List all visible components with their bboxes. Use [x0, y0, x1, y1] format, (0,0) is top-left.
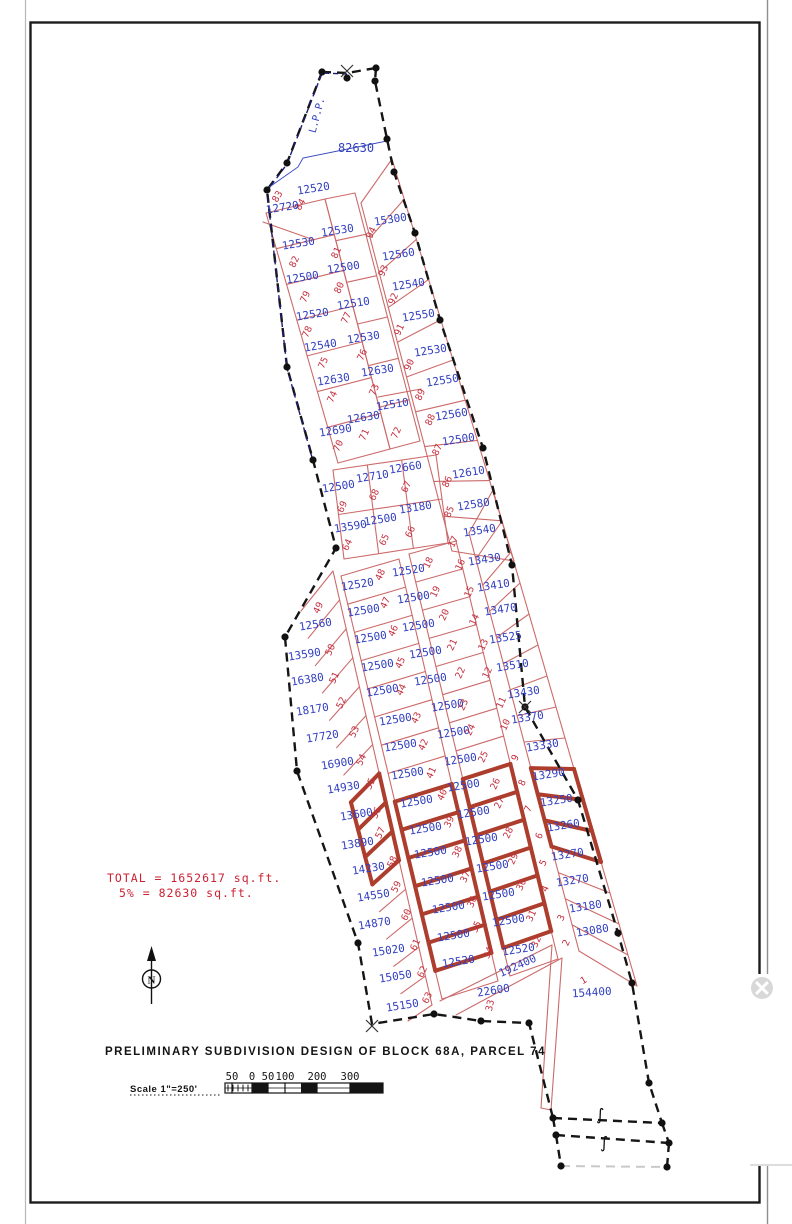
lot-number-label: 50 [323, 642, 338, 657]
lot-area-label: 12500 [446, 777, 481, 795]
lot-area-label: 12500 [420, 872, 455, 890]
boundary-dot [343, 74, 350, 81]
lot-number-label: 33 [484, 999, 497, 1012]
lot-area-label: 12520 [441, 953, 476, 971]
lot-line [344, 543, 448, 559]
lot-area-label: 12500 [399, 793, 434, 811]
boundary-dot [614, 929, 621, 936]
scale-group: Scale 1"=250' 50050100200300 [130, 1071, 383, 1095]
lot-area-label: 12500 [408, 644, 443, 662]
lot-area-label: 12500 [285, 269, 320, 287]
lot-area-label: 13180 [568, 898, 603, 916]
lot-area-label: 15150 [385, 997, 420, 1015]
lot-line [347, 276, 377, 283]
line-break-symbols: ∫ ∫ [596, 1105, 608, 1152]
scale-tick-label: 200 [308, 1071, 327, 1083]
scale-tick-label: 300 [341, 1071, 360, 1083]
boundary-dot [332, 544, 339, 551]
boundary-dot [479, 444, 486, 451]
boundary-dot [293, 767, 300, 774]
lot-line [456, 736, 503, 751]
lot-area-label: 12560 [434, 406, 469, 424]
lot-number-label: 15 [462, 584, 477, 599]
lot-number-label: 81 [329, 245, 344, 260]
lot-number-label: 77 [339, 310, 354, 325]
lot-area-label: 12720 [265, 199, 300, 217]
lot-number-label: 21 [445, 637, 460, 652]
lot-area-label: 12500 [408, 820, 443, 838]
boundary-dot [430, 1010, 437, 1017]
lot-number-label: 74 [325, 389, 340, 404]
lot-area-label: 12500 [456, 804, 491, 822]
lot-number-label: 20 [437, 607, 452, 622]
lot-line [463, 764, 511, 779]
boundary-dot [390, 168, 397, 175]
boundary-dot [645, 1079, 652, 1086]
lot-number-label: 75 [316, 355, 331, 370]
lot-area-label: 12510 [336, 295, 371, 313]
lot-number-label: 73 [367, 382, 382, 397]
lot-number-label: 67 [399, 479, 414, 494]
lot-line [358, 317, 388, 324]
lot-number-label: 66 [403, 524, 418, 539]
lot-area-label: 13080 [575, 922, 610, 940]
scale-tick-label: 100 [276, 1071, 295, 1083]
lot-area-label: 12560 [298, 616, 333, 634]
lot-line [338, 449, 390, 463]
lot-area-label: 12710 [355, 468, 390, 486]
lot-number-label: 93 [376, 263, 391, 278]
lot-area-label: 12500 [413, 844, 448, 862]
boundary-dot [318, 68, 325, 75]
boundary-dot [508, 561, 515, 568]
lot-number-label: 70 [331, 438, 346, 453]
lot-number-label: 63 [420, 990, 435, 1005]
lot-area-label: 12630 [316, 371, 351, 389]
boundary-dot [436, 316, 443, 323]
lot-line [325, 193, 355, 199]
boundary-dot [372, 64, 379, 71]
boundary-dot [281, 633, 288, 640]
lot-line [436, 652, 483, 666]
lot-area-label: 12500 [464, 831, 499, 849]
boundary-dot [371, 77, 378, 84]
lot-number-label: 34 [481, 945, 496, 960]
lot-line [443, 680, 490, 694]
lot-number-label: 16 [453, 557, 468, 572]
lot-number-label: 60 [399, 907, 414, 922]
lot-area-label: 12500 [436, 927, 471, 945]
lot-number-label: 46 [386, 623, 401, 638]
lot-area-label: 12500 [431, 899, 466, 917]
lot-area-label: 16380 [290, 671, 325, 689]
lot-number-label: 14 [467, 612, 482, 627]
lot-area-label: 12580 [456, 496, 491, 514]
lot-number-label: 78 [300, 324, 315, 339]
lot-area-label: 18170 [295, 701, 330, 719]
lot-number-label: 92 [386, 291, 401, 306]
drawing-title: PRELIMINARY SUBDIVISION DESIGN OF BLOCK … [105, 1046, 546, 1058]
lot-area-label: 12530 [281, 235, 316, 253]
lot-area-label: 13430 [467, 551, 502, 569]
lot-number-label: 2 [561, 938, 573, 948]
lot-line [541, 945, 552, 1108]
lot-number-label: 82 [287, 254, 302, 269]
lot-area-label: 12500 [326, 259, 361, 277]
lot-area-label: 14550 [356, 887, 391, 905]
lot-area-label: 17720 [305, 728, 340, 746]
boundary-dot [552, 1131, 559, 1138]
lot-area-label: 12500 [443, 751, 478, 769]
lot-area-label: 12540 [391, 276, 426, 294]
lot-number-label: 12 [480, 665, 495, 680]
lot-area-label: 13430 [506, 684, 541, 702]
lot-number-label: 71 [357, 427, 372, 442]
lot-number-label: 42 [416, 737, 431, 752]
lot-number-label: 53 [347, 724, 362, 739]
scale-tick-label: 0 [249, 1071, 255, 1083]
lot-line [379, 774, 399, 861]
lot-number-label: 49 [311, 600, 326, 615]
lot-area-label: 13470 [483, 601, 518, 619]
lot-area-label: 154400 [571, 985, 612, 1001]
drawing-frame [31, 23, 760, 1203]
lot-number-label: 68 [367, 487, 382, 502]
boundary-dot [628, 979, 635, 986]
lot-number-label: 80 [332, 280, 347, 295]
lot-area-label: 12500 [321, 478, 356, 496]
lot-area-label: 12630 [360, 362, 395, 380]
lot-area-label: 12530 [346, 329, 381, 347]
lot-area-label: 12500 [390, 765, 425, 783]
north-letter: N [148, 975, 156, 987]
boundary-dot [663, 1163, 670, 1170]
lot-number-label: 9 [510, 753, 523, 763]
lot-number-label: 54 [354, 752, 369, 767]
lot-area-label: 12500 [363, 511, 398, 529]
lot-area-label: 22600 [476, 982, 511, 1000]
boundary-dot [525, 1019, 532, 1026]
lot-area-label: 12500 [401, 617, 436, 635]
boundary-dot [477, 1017, 484, 1024]
lot-number-label: 61 [408, 937, 423, 952]
lot-area-label: 12510 [375, 396, 410, 414]
lot-area-label: 13525 [488, 629, 523, 647]
lot-area-label: 12520 [391, 562, 426, 580]
lot-number-label: 5 [538, 858, 550, 868]
lot-area-label: 13590 [333, 518, 368, 536]
lot-number-label: 79 [298, 289, 313, 304]
svg-text:∫: ∫ [596, 1105, 604, 1124]
lot-area-label: 12500 [441, 431, 476, 449]
lot-area-label: 12560 [381, 246, 416, 264]
lot-number-label: 62 [415, 964, 430, 979]
lot-area-label: 12520 [340, 576, 375, 594]
lot-number-label: 38 [450, 844, 465, 859]
scale-bar-fill [350, 1083, 383, 1093]
total-area-text: TOTAL = 1652617 sq.ft. [107, 871, 281, 885]
lot-area-label: 13180 [398, 499, 433, 517]
lot-area-label: 12630 [346, 409, 381, 427]
lot-number-label: 25 [476, 749, 491, 764]
lot-line [436, 455, 448, 543]
lot-area-label: 12520 [296, 180, 331, 198]
lot-area-label: 16900 [320, 755, 355, 773]
lot-area-label: 13590 [287, 646, 322, 664]
boundary-dot [283, 363, 290, 370]
lot-number-label: 52 [334, 695, 349, 710]
lot-area-label: 12500 [481, 886, 516, 904]
lot-number-label: 7 [523, 804, 535, 814]
lot-line [551, 958, 562, 1110]
scale-tick-label: 50 [262, 1071, 275, 1083]
lot-area-label: 12530 [413, 342, 448, 360]
subdivision-plan: ∫ ∫ 125208412720831253082125007912520781… [0, 0, 792, 1224]
lot-area-label: 14930 [326, 779, 361, 797]
lot-number-label: 76 [355, 347, 370, 362]
lot-area-label: 12610 [451, 464, 486, 482]
lot-area-label: 12500 [396, 589, 431, 607]
boundary-dot [383, 135, 390, 142]
five-percent-text: 5% = 82630 sq.ft. [119, 886, 254, 900]
boundary-dot [658, 1119, 665, 1126]
lot-number-label: 8 [517, 778, 530, 788]
totals-block: TOTAL = 1652617 sq.ft. 5% = 82630 sq.ft. [107, 871, 281, 900]
plat-drawing-page: ∫ ∫ 125208412720831253082125007912520781… [0, 0, 792, 1224]
scale-bar-fill [252, 1083, 268, 1093]
lot-area-label: 12520 [295, 306, 330, 324]
lot-area-label: 15300 [373, 211, 408, 229]
lot-area-label: 13260 [546, 817, 581, 835]
lot-number-label: 1 [579, 975, 590, 988]
lot-area-label: 13370 [510, 709, 545, 727]
boundary-dot [263, 186, 270, 193]
svg-text:∫: ∫ [600, 1133, 608, 1152]
lot-number-label: 35 [469, 919, 484, 934]
boundary-dot [557, 1162, 564, 1169]
boundary-dot [411, 229, 418, 236]
lot-area-label: 15020 [371, 942, 406, 960]
lot-line [361, 159, 392, 203]
north-arrow: N [143, 946, 161, 1004]
boundary-dot [283, 159, 290, 166]
lot-area-label: 15050 [378, 968, 413, 986]
open-space-area-label: 82630 [338, 141, 374, 155]
lot-number-label: 26 [488, 776, 503, 791]
lot-number-label: 48 [373, 567, 388, 582]
scrollbar-hide-widget[interactable] [750, 974, 792, 1166]
lot-area-label: 12500 [378, 711, 413, 729]
lot-number-label: 65 [377, 532, 392, 547]
lot-area-label: 12550 [425, 372, 460, 390]
boundary-dot [309, 456, 316, 463]
lot-number-label: 3 [556, 913, 568, 923]
boundary-dot [354, 939, 361, 946]
lot-area-label: 12550 [401, 307, 436, 325]
boundary-dot [665, 1139, 672, 1146]
lot-number-label: 45 [393, 655, 408, 670]
lot-area-label: 12530 [320, 222, 355, 240]
lot-number-label: 22 [453, 665, 468, 680]
boundary-dot [574, 796, 581, 803]
lot-line [390, 441, 420, 449]
scale-tick-label: 50 [226, 1071, 239, 1083]
lot-number-label: 19 [428, 584, 443, 599]
lot-number-label: 47 [378, 595, 393, 610]
lot-area-label: 12500 [383, 737, 418, 755]
lot-area-label: 12500 [346, 602, 381, 620]
lot-number-label: 41 [424, 765, 439, 780]
lot-area-label: 13330 [525, 737, 560, 755]
lot-line [429, 625, 476, 639]
lot-number-label: 6 [534, 831, 547, 841]
lot-number-label: 69 [335, 499, 350, 514]
lot-area-label: 13270 [555, 872, 590, 890]
lot-area-label: 13890 [340, 835, 375, 853]
lot-area-label: 13510 [495, 657, 530, 675]
scale-bar-fill [301, 1083, 317, 1093]
lot-area-label: 14870 [357, 915, 392, 933]
lot-number-label: 72 [389, 425, 404, 440]
scale-label: Scale 1"=250' [130, 1084, 197, 1095]
faint-bottom-line [561, 1166, 667, 1167]
boundary-dot [549, 1114, 556, 1121]
lot-number-label: 91 [392, 322, 407, 337]
